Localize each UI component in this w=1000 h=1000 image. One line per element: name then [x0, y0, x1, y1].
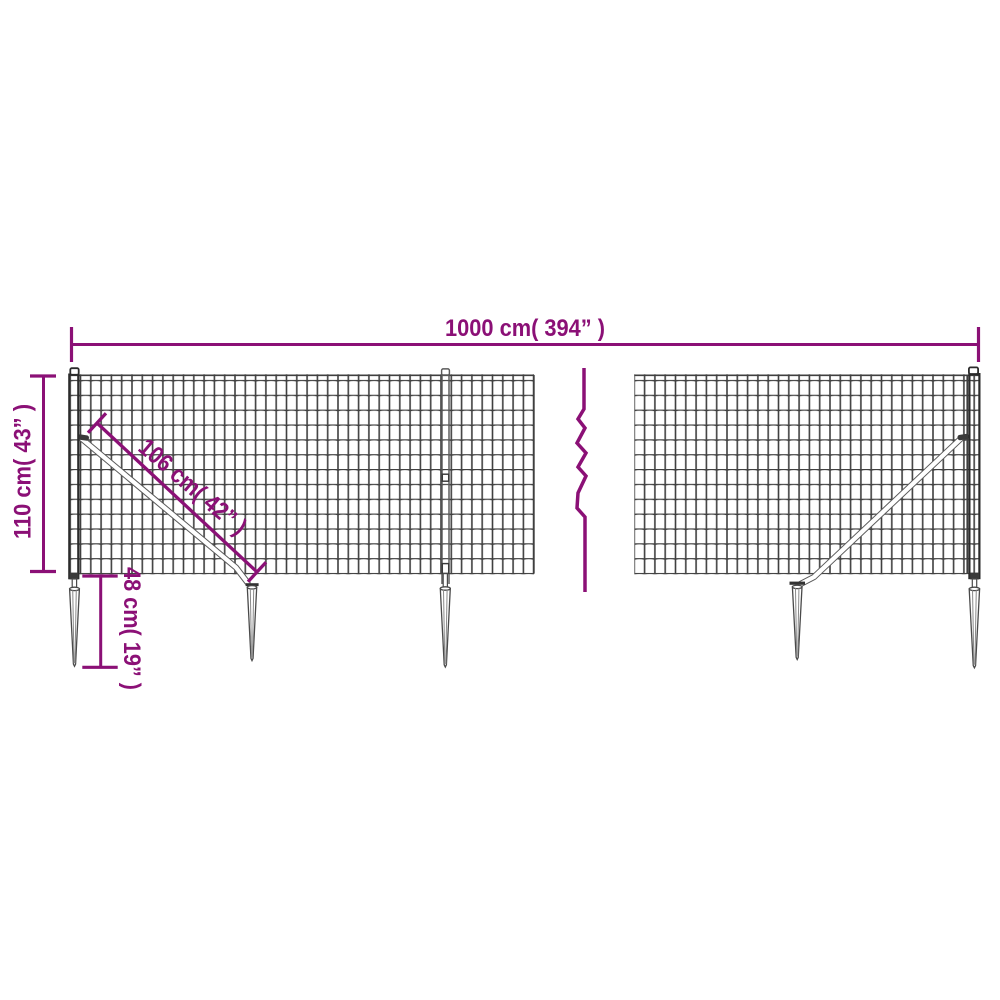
svg-text:48 cm( 19” ): 48 cm( 19” ) [118, 567, 145, 690]
svg-text:1000 cm( 394” ): 1000 cm( 394” ) [445, 315, 605, 342]
svg-text:110 cm( 43” ): 110 cm( 43” ) [10, 404, 37, 539]
